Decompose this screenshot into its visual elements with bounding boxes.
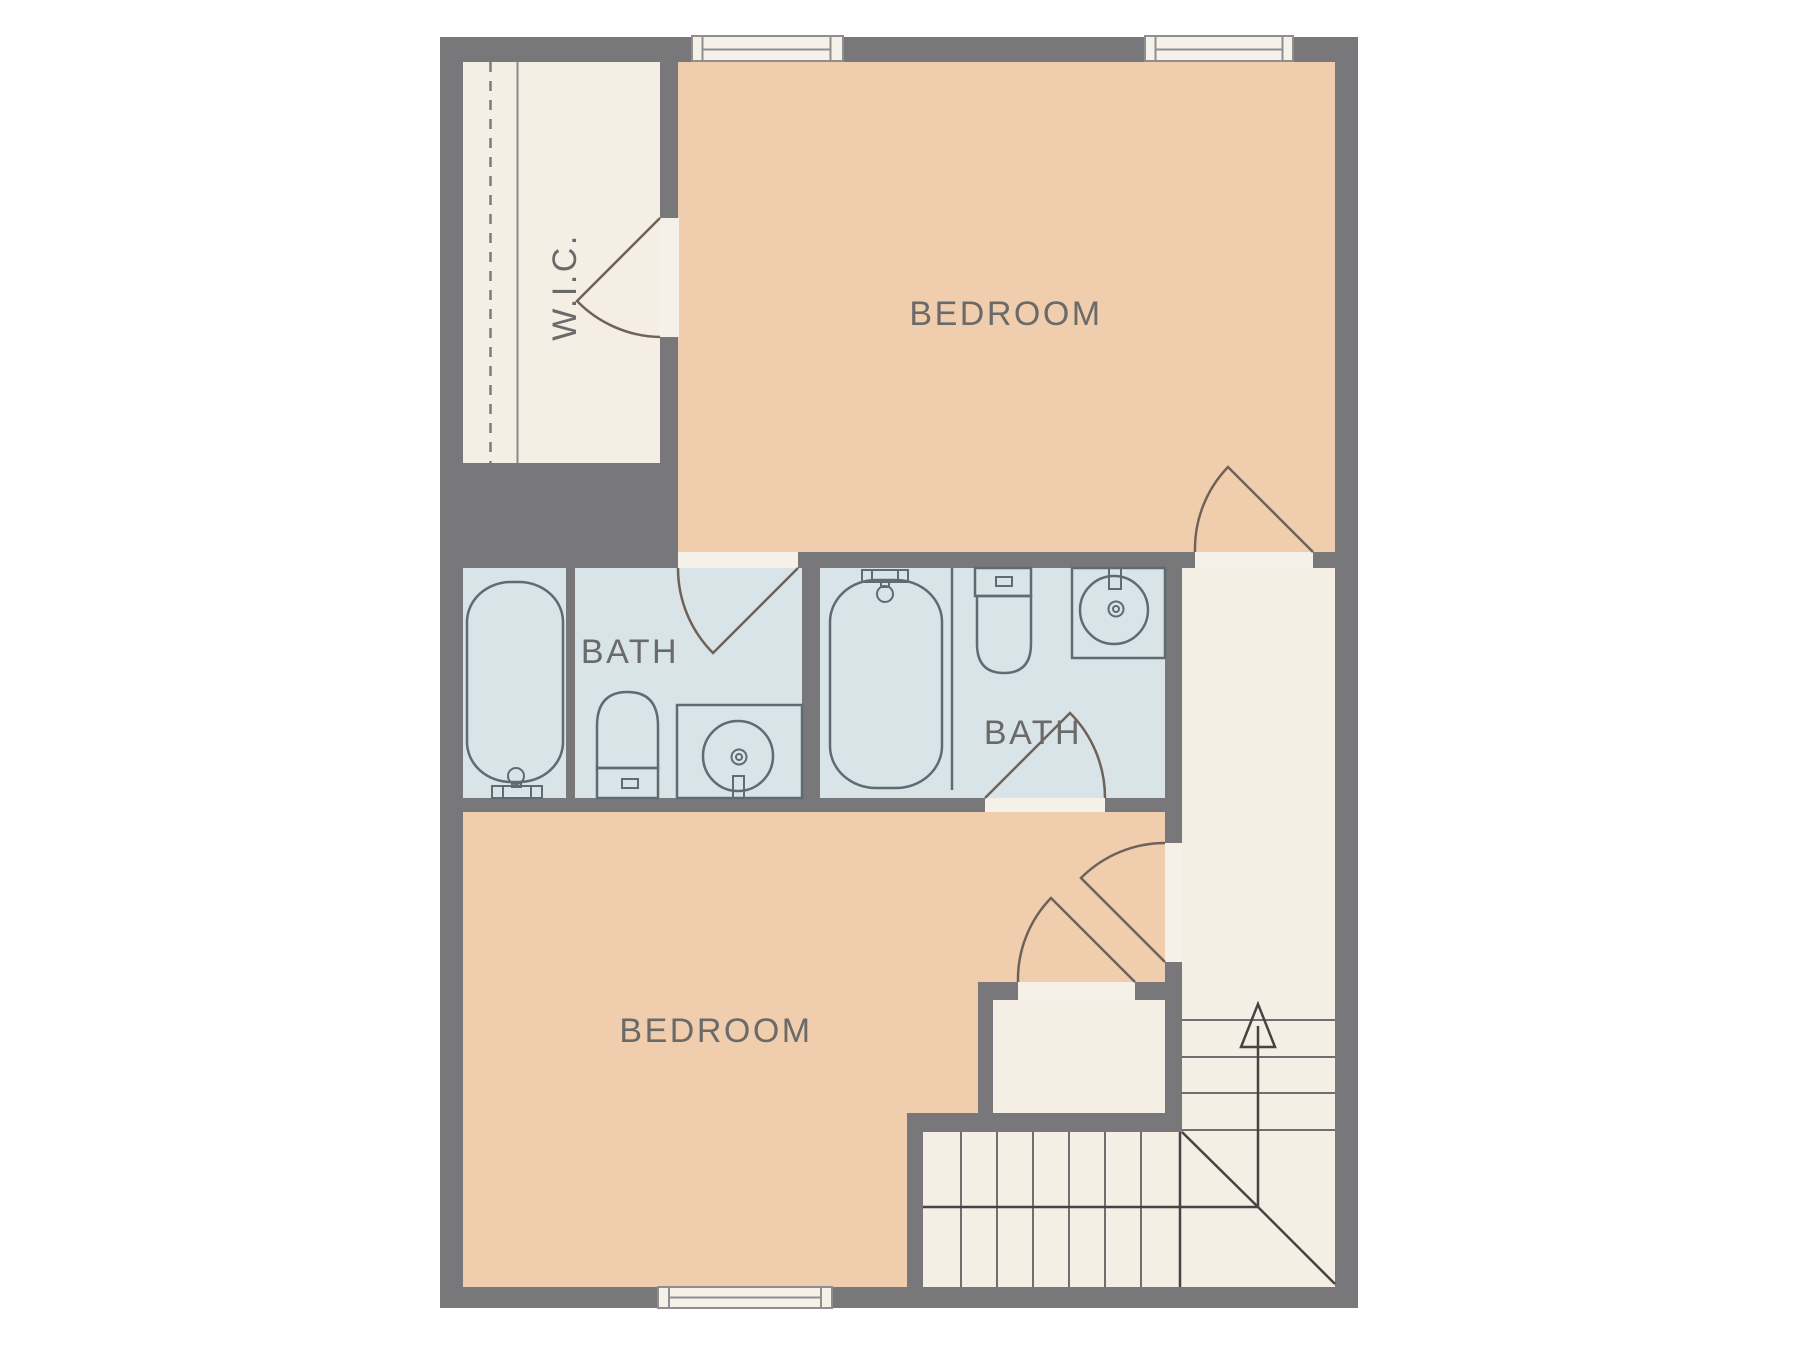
- bedroom-top-label: BEDROOM: [909, 295, 1102, 333]
- closet-floor: [993, 1000, 1165, 1113]
- wic-door-opening: [659, 218, 679, 337]
- room-floors: [463, 62, 1335, 1287]
- bath-right-door-opening: [985, 798, 1105, 812]
- bath-left-tub-alcove-floor: [463, 568, 566, 798]
- window-bottom-icon: [658, 1287, 832, 1308]
- floor-plan-canvas: W.I.C. BEDROOM BATH BATH BEDROOM: [0, 0, 1800, 1350]
- window-top-right-icon: [1145, 36, 1293, 61]
- stairwell-floor: [923, 1132, 1335, 1287]
- bedroom-top-door-opening: [1195, 552, 1313, 568]
- bath-right-label: BATH: [984, 714, 1082, 752]
- wic-label: W.I.C.: [546, 233, 584, 341]
- bath-left-floor: [575, 568, 802, 798]
- bath-left-label: BATH: [581, 633, 679, 671]
- bath-left-door-opening: [678, 552, 798, 568]
- bedroom-bottom-door-opening: [1165, 843, 1182, 962]
- floor-plan-page: W.I.C. BEDROOM BATH BATH BEDROOM: [0, 0, 1800, 1350]
- bedroom-bottom-label: BEDROOM: [619, 1012, 812, 1050]
- window-top-left-icon: [692, 36, 843, 61]
- closet-door-opening: [1018, 982, 1135, 1000]
- bedroom-bottom-floor-nook: [907, 982, 978, 1113]
- bedroom-bottom-floor-east: [907, 812, 1165, 982]
